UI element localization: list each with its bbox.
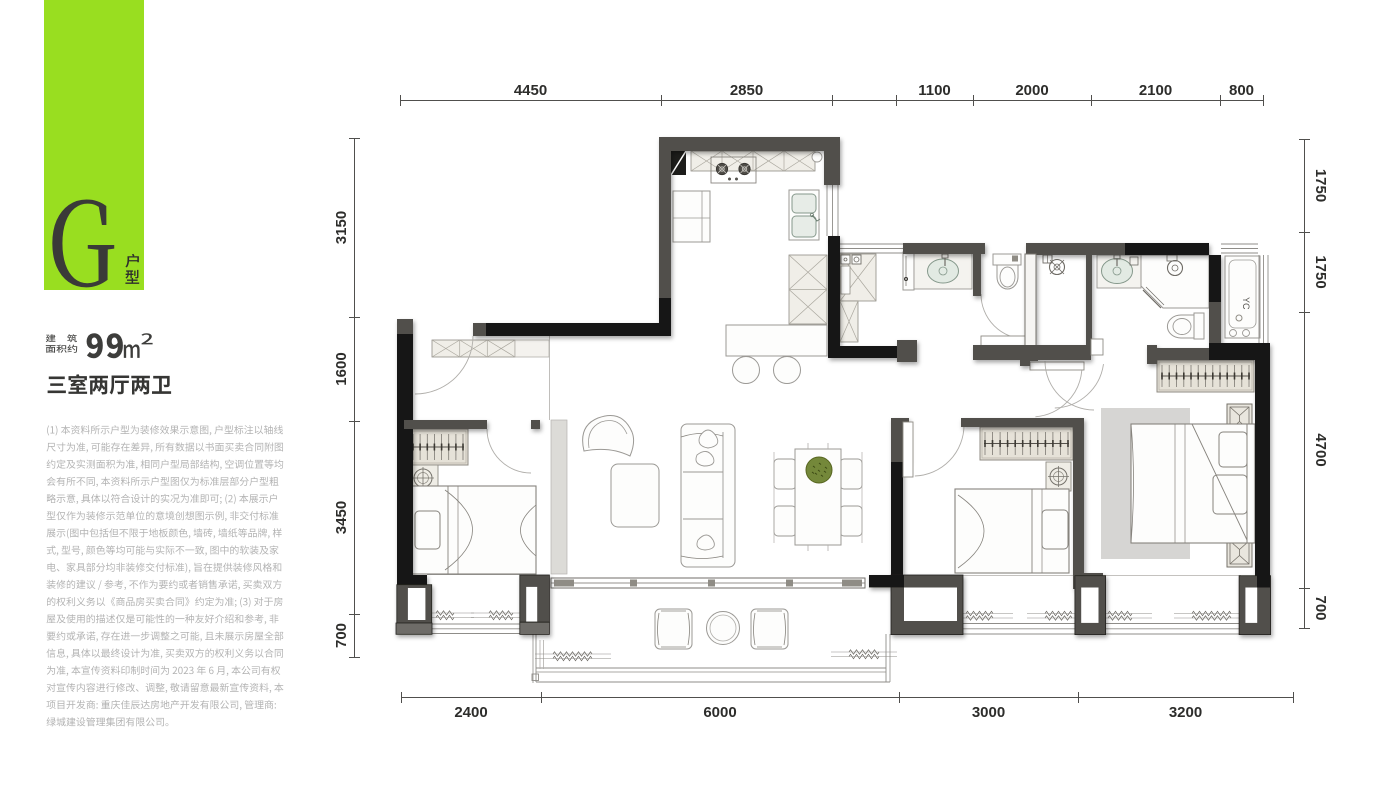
svg-text:1100: 1100 — [918, 82, 951, 99]
svg-text:3150: 3150 — [333, 211, 350, 244]
svg-text:2850: 2850 — [730, 82, 763, 99]
svg-text:700: 700 — [1312, 595, 1329, 620]
svg-text:4700: 4700 — [1312, 433, 1329, 466]
svg-text:2400: 2400 — [454, 704, 487, 721]
svg-text:2000: 2000 — [1015, 82, 1048, 99]
svg-text:800: 800 — [1229, 82, 1254, 99]
svg-text:YC: YC — [1241, 297, 1251, 310]
svg-text:3000: 3000 — [972, 704, 1005, 721]
svg-text:3450: 3450 — [333, 501, 350, 534]
svg-text:1600: 1600 — [333, 352, 350, 385]
svg-text:4450: 4450 — [514, 82, 547, 99]
svg-text:700: 700 — [333, 623, 350, 648]
svg-text:6000: 6000 — [703, 704, 736, 721]
svg-text:1750: 1750 — [1312, 169, 1329, 202]
svg-text:3200: 3200 — [1169, 704, 1202, 721]
svg-text:2100: 2100 — [1139, 82, 1172, 99]
svg-text:1750: 1750 — [1312, 255, 1329, 288]
